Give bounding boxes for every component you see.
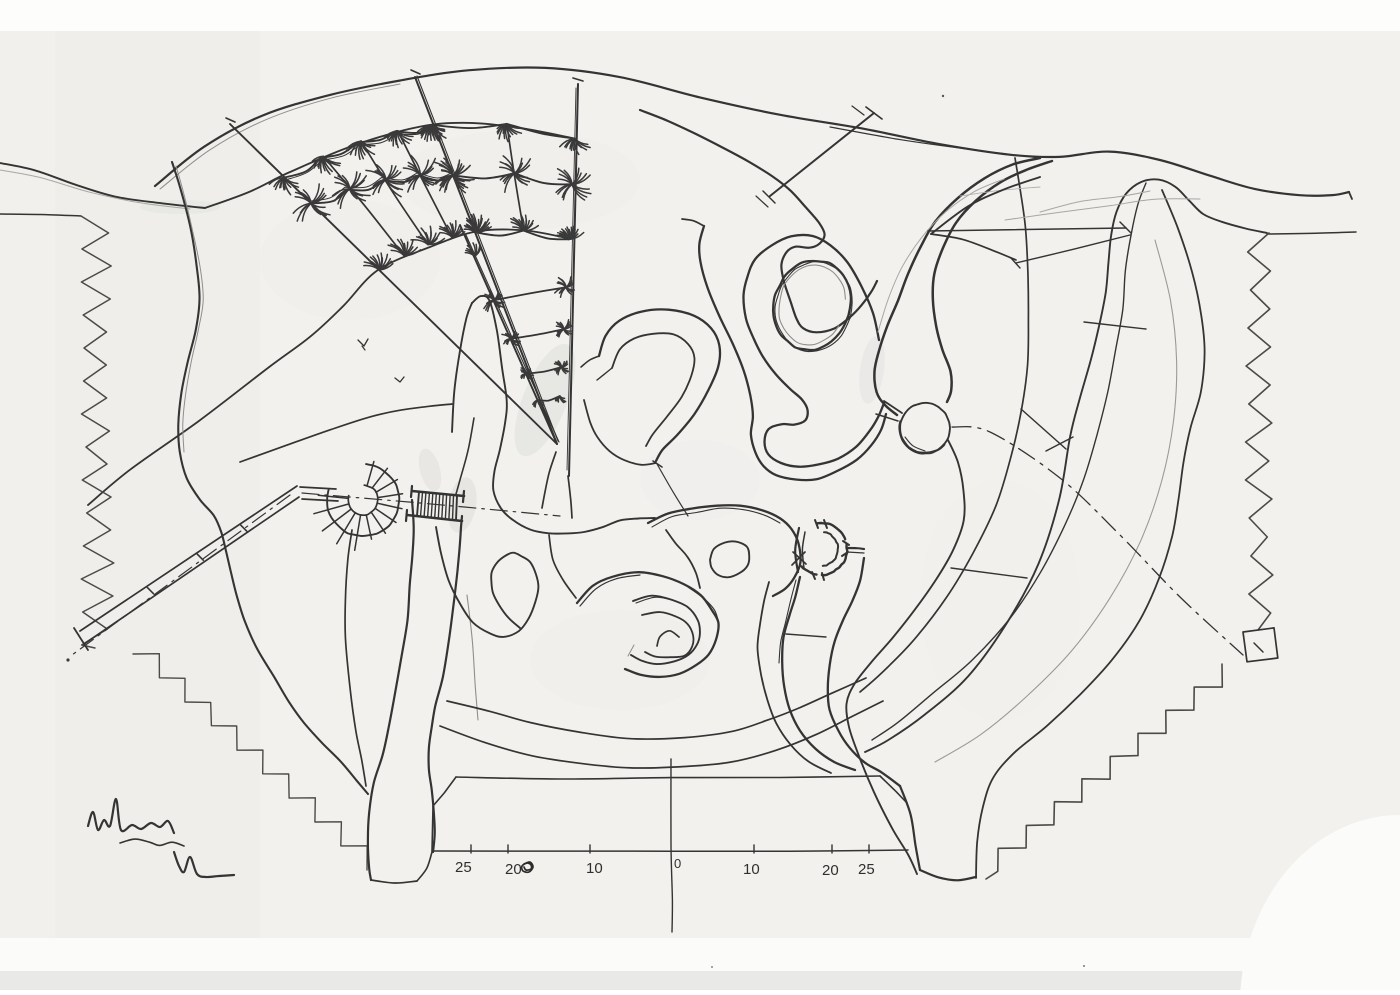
svg-text:10: 10: [743, 861, 760, 878]
svg-text:25: 25: [858, 861, 875, 878]
svg-text:25: 25: [455, 859, 472, 876]
svg-text:20: 20: [822, 862, 839, 879]
svg-text:10: 10: [586, 860, 603, 877]
svg-text:20: 20: [505, 861, 522, 878]
svg-text:0: 0: [674, 856, 681, 871]
